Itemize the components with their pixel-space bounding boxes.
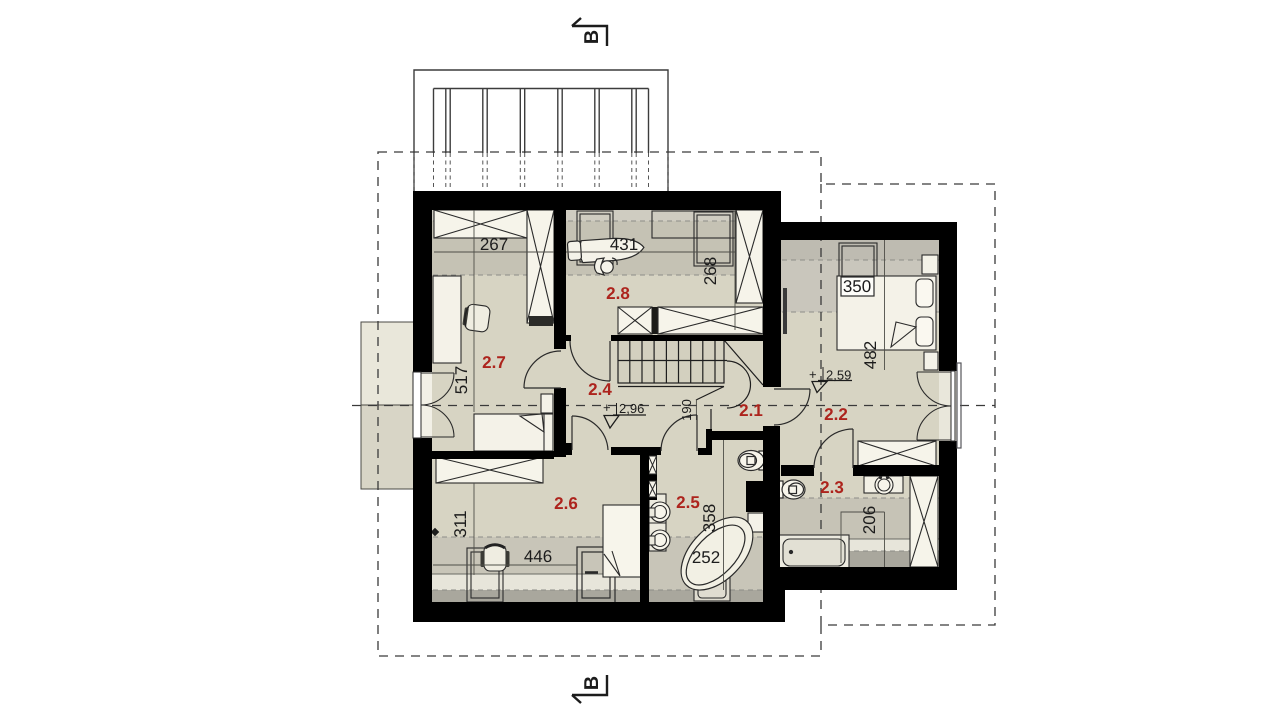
svg-text:252: 252 xyxy=(692,548,720,567)
svg-text:268: 268 xyxy=(701,257,720,285)
svg-text:B: B xyxy=(581,30,603,44)
svg-text:+: + xyxy=(809,367,817,382)
svg-text:2.1: 2.1 xyxy=(739,401,763,420)
svg-text:2.2: 2.2 xyxy=(824,405,848,424)
svg-text:190: 190 xyxy=(679,399,694,421)
svg-text:517: 517 xyxy=(452,366,471,394)
svg-text:350: 350 xyxy=(843,277,871,296)
svg-text:2.6: 2.6 xyxy=(554,494,578,513)
svg-text:2.5: 2.5 xyxy=(676,493,700,512)
svg-text:358: 358 xyxy=(700,504,719,532)
svg-text:2.4: 2.4 xyxy=(588,380,612,399)
svg-text:206: 206 xyxy=(860,506,879,534)
svg-text:2,96: 2,96 xyxy=(619,401,644,416)
svg-text:2.8: 2.8 xyxy=(606,284,630,303)
svg-text:446: 446 xyxy=(524,547,552,566)
svg-text:311: 311 xyxy=(451,510,470,537)
svg-text:2.3: 2.3 xyxy=(820,478,844,497)
svg-text:482: 482 xyxy=(861,341,880,369)
svg-text:431: 431 xyxy=(610,235,638,254)
svg-text:+: + xyxy=(603,400,611,415)
svg-text:2.7: 2.7 xyxy=(482,353,506,372)
svg-text:B: B xyxy=(581,676,603,690)
svg-text:267: 267 xyxy=(480,235,508,254)
